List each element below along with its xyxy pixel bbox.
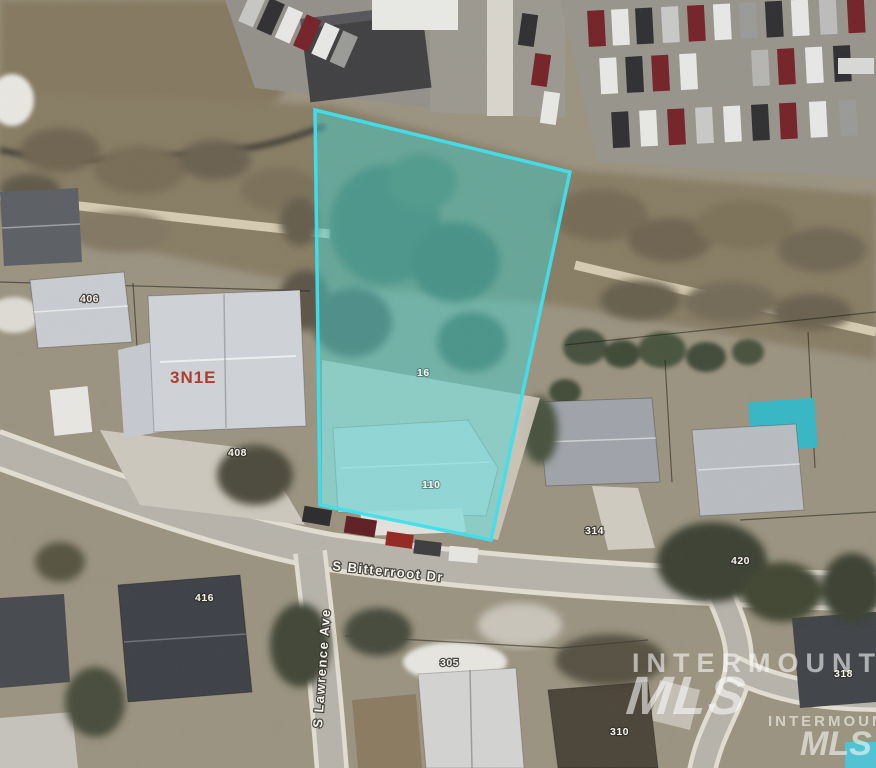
photo-grain [0,0,876,768]
aerial-basemap: 3N1E 16 110 406 408 314 420 416 305 310 … [0,0,876,768]
aerial-map-screenshot: 3N1E 16 110 406 408 314 420 416 305 310 … [0,0,876,768]
